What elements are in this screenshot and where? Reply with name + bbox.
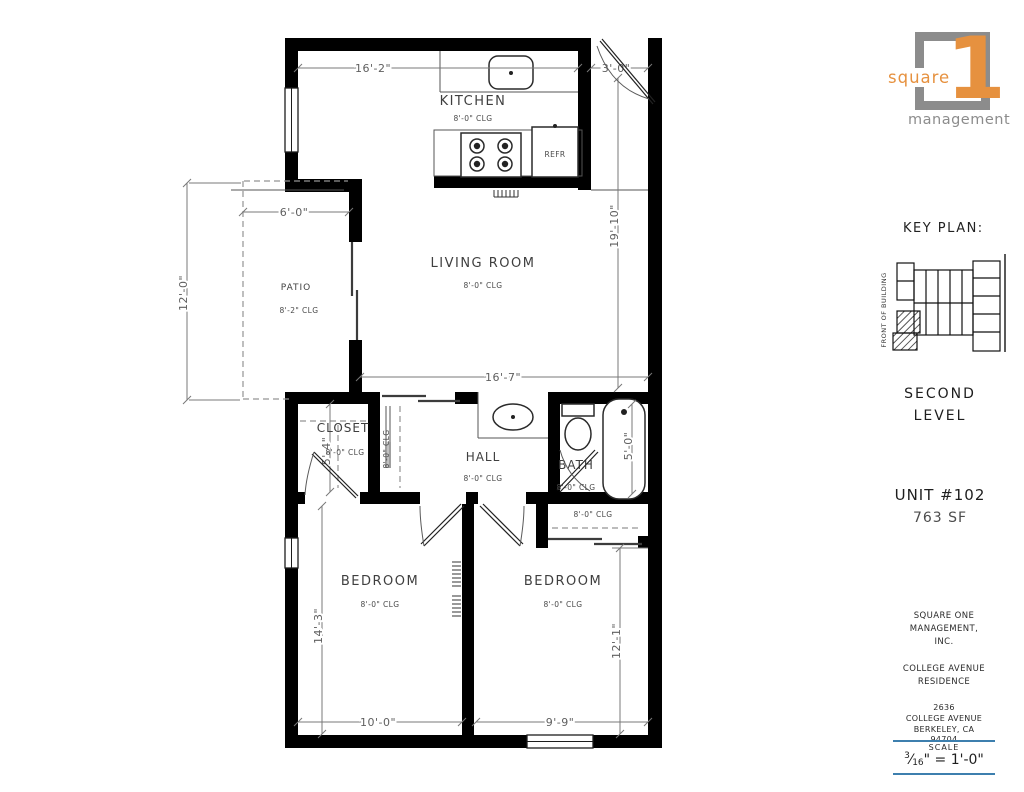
hall-label: HALL: [466, 450, 501, 464]
hall-clg: 8'-0" CLG: [464, 474, 503, 483]
level-line-2: LEVEL: [880, 406, 1000, 428]
dim-bedroom2-depth: 12'-1": [610, 544, 648, 738]
toilet: [562, 404, 594, 450]
patio-sliding-door: [352, 242, 357, 340]
bedroom1-window: [285, 538, 298, 568]
address-line: BERKELEY, CA: [880, 725, 1008, 736]
patio-clg: 8'-2" CLG: [280, 306, 319, 315]
bedroom1-clg: 8'-0" CLG: [361, 600, 400, 609]
svg-text:19'-10": 19'-10": [608, 204, 621, 248]
address-line: 2636: [880, 703, 1008, 714]
project-line: RESIDENCE: [880, 676, 1008, 689]
unit-number: UNIT #102: [880, 486, 1000, 504]
living-room-window: [285, 88, 298, 152]
bedroom2-window: [527, 735, 593, 748]
svg-text:12'-0": 12'-0": [177, 275, 190, 311]
kitchen-clg: 8'-0" CLG: [454, 114, 493, 123]
dim-kitchen-width: 16'-2": [294, 62, 582, 75]
project-name: COLLEGE AVENUE RESIDENCE: [880, 663, 1008, 689]
dim-patio-depth: 12'-0": [177, 179, 241, 404]
svg-text:10'-0": 10'-0": [360, 716, 396, 729]
title-block-sidebar: square 1 management KEY PLAN:: [860, 0, 1024, 792]
project-line: COLLEGE AVENUE: [880, 663, 1008, 676]
bedroom2-closet-clg: 8'-0" CLG: [574, 510, 613, 519]
level-line-1: SECOND: [880, 384, 1000, 406]
level-title: SECOND LEVEL: [880, 384, 1000, 427]
bedroom2-clg: 8'-0" CLG: [544, 600, 583, 609]
dim-patio-width: 6'-0": [239, 206, 353, 219]
kitchen-label: KITCHEN: [440, 94, 507, 109]
square-one-logo: square 1 management: [860, 0, 1024, 140]
logo-word-square: square: [886, 68, 952, 87]
svg-text:3'-0": 3'-0": [602, 62, 631, 75]
company-line: INC.: [880, 636, 1008, 649]
svg-text:16'-7": 16'-7": [485, 371, 521, 384]
unit-area: 763 SF: [880, 510, 1000, 526]
key-plan-title: KEY PLAN:: [903, 221, 984, 236]
bedroom1-door: [420, 504, 464, 546]
kitchen-sink: [489, 56, 533, 89]
bedroom2-closet-sliding-door: [548, 539, 642, 544]
svg-text:12'-1": 12'-1": [610, 623, 623, 659]
stove: [461, 133, 521, 177]
bedroom2-label: BEDROOM: [524, 574, 602, 589]
dim-bedroom1-width: 10'-0": [294, 716, 466, 729]
living-room-label: LIVING ROOM: [431, 256, 536, 271]
refrigerator-label: REFR: [544, 150, 565, 159]
key-plan-map: FRONT OF BUILDING: [868, 248, 1016, 360]
key-plan-unit-highlight: [893, 311, 920, 350]
dim-living-length: 19'-10": [608, 74, 622, 392]
kitchen-vent: [494, 190, 518, 197]
svg-text:5'-0": 5'-0": [622, 432, 635, 461]
scale-equation: " = 1'-0": [924, 752, 984, 768]
company-line: SQUARE ONE: [880, 610, 1008, 623]
logo-numeral-1: 1: [946, 26, 1006, 112]
hall-vanity: [478, 392, 548, 438]
divider-line-bottom: [893, 773, 995, 775]
patio-label: PATIO: [281, 283, 312, 293]
address-line: COLLEGE AVENUE: [880, 714, 1008, 725]
divider-line-top: [893, 740, 995, 742]
company-line: MANAGEMENT,: [880, 623, 1008, 636]
dim-bedroom2-width: 9'-9": [472, 716, 652, 729]
dim-bedroom1-depth: 14'-3": [312, 502, 326, 738]
svg-text:16'-2": 16'-2": [355, 62, 391, 75]
closet-clg: 8'-0" CLG: [326, 448, 365, 457]
bedroom1-label: BEDROOM: [341, 574, 419, 589]
front-of-building-label: FRONT OF BUILDING: [880, 272, 888, 347]
hall-closet-sliding-door: [382, 396, 460, 401]
hall-closet-clg: 8'-0" CLG: [382, 430, 391, 469]
living-room-clg: 8'-0" CLG: [464, 281, 503, 290]
closet-label: CLOSET: [317, 421, 370, 435]
svg-text:9'-9": 9'-9": [546, 716, 575, 729]
company-name: SQUARE ONE MANAGEMENT, INC.: [880, 610, 1008, 648]
wall-heater: [452, 562, 461, 616]
svg-text:14'-3": 14'-3": [312, 608, 325, 644]
dim-living-width: 16'-7": [356, 371, 652, 384]
bedroom2-door: [480, 504, 524, 546]
svg-text:6'-0": 6'-0": [280, 206, 309, 219]
vanity-sink: [493, 404, 533, 430]
floor-plan-drawing: REFR: [0, 0, 870, 792]
refrigerator: REFR: [532, 124, 578, 177]
scale-denominator: 16: [912, 758, 923, 768]
floor-plan-sheet: REFR: [0, 0, 1024, 792]
scale-value: 3⁄16" = 1'-0": [880, 751, 1008, 768]
